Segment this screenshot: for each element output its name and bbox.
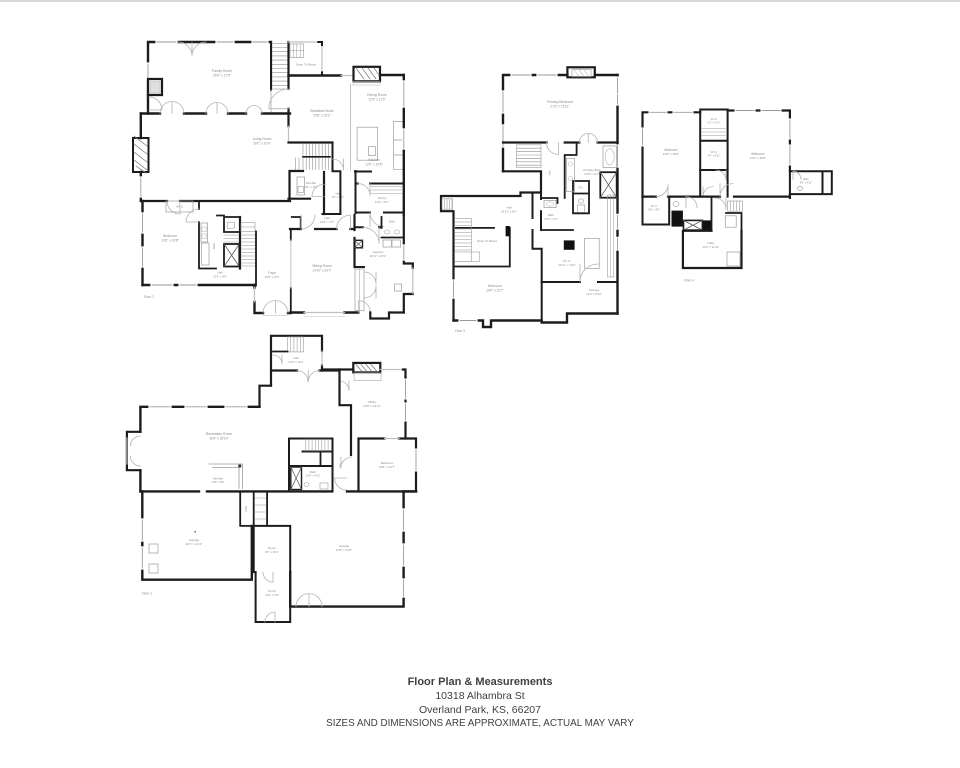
svg-text:10'8" x 4'10": 10'8" x 4'10" [306, 474, 321, 478]
svg-text:5'6" x 4'9": 5'6" x 4'9" [648, 208, 659, 212]
svg-text:12'2" x 8'10": 12'2" x 8'10" [586, 292, 602, 296]
svg-text:13'6" x 12'11": 13'6" x 12'11" [702, 245, 719, 249]
svg-text:12'9" x 11'9": 12'9" x 11'9" [368, 98, 385, 102]
svg-text:13'8" x 11'6": 13'8" x 11'6" [584, 172, 600, 176]
svg-text:Floor 4: Floor 4 [684, 279, 694, 283]
svg-text:W.I.C: W.I.C [711, 150, 718, 154]
svg-text:Floor 2: Floor 2 [144, 295, 154, 299]
svg-text:Recreation Room: Recreation Room [206, 432, 233, 436]
svg-text:W.I.C: W.I.C [711, 117, 718, 121]
svg-text:14'8" x 20'5": 14'8" x 20'5" [663, 152, 679, 156]
svg-text:26'6" x 17'0": 26'6" x 17'0" [213, 74, 230, 78]
svg-text:Toilet: Toilet [245, 506, 248, 512]
svg-text:Bedroom: Bedroom [163, 234, 177, 238]
svg-text:13'6" x 16'8": 13'6" x 16'8" [161, 239, 178, 243]
svg-text:13'8" x 13'11": 13'8" x 13'11" [363, 404, 381, 408]
svg-text:12'8" x 8'9": 12'8" x 8'9" [211, 480, 224, 484]
svg-text:21'6" x 15'11": 21'6" x 15'11" [550, 105, 569, 109]
svg-text:36'4" x 26'10": 36'4" x 26'10" [209, 437, 228, 441]
svg-text:27'8" x 21'8": 27'8" x 21'8" [336, 548, 352, 552]
svg-text:26'6" x 20'0": 26'6" x 20'0" [253, 142, 270, 146]
svg-text:11'11" x 20'1": 11'11" x 20'1" [369, 254, 386, 258]
svg-text:14'9" x 20'5": 14'9" x 20'5" [750, 156, 766, 160]
svg-text:Open To Below: Open To Below [296, 63, 317, 67]
svg-text:Floor 1: Floor 1 [142, 592, 152, 596]
svg-text:Dining Room: Dining Room [367, 93, 387, 97]
svg-text:Living Room: Living Room [253, 137, 272, 141]
svg-text:Bath: Bath [310, 470, 316, 474]
svg-text:W.C.: W.C. [578, 186, 584, 190]
svg-text:Bath: Bath [803, 177, 809, 181]
svg-text:11'6" x 8'7": 11'6" x 8'7" [375, 200, 389, 204]
svg-text:Bath: Bath [212, 243, 216, 249]
svg-text:12'6" x 11'2": 12'6" x 11'2" [288, 360, 303, 364]
svg-text:13'8" x 12'7": 13'8" x 12'7" [379, 465, 395, 469]
svg-text:Bath: Bath [389, 220, 395, 224]
svg-text:4'0" x 6'11": 4'0" x 6'11" [708, 154, 721, 158]
svg-text:Floor 3: Floor 3 [455, 329, 465, 333]
svg-text:Primary Bedroom: Primary Bedroom [547, 100, 574, 104]
svg-text:6'1" x 9'10": 6'1" x 9'10" [708, 121, 721, 125]
svg-text:10'0" x 6'5": 10'0" x 6'5" [265, 275, 280, 279]
svg-text:7'6" x 16'1": 7'6" x 16'1" [331, 195, 344, 199]
svg-text:15'8" x 25'2": 15'8" x 25'2" [313, 114, 330, 118]
svg-text:11'0" x 6'8": 11'0" x 6'8" [265, 593, 279, 597]
svg-text:9'1" x 16'1": 9'1" x 16'1" [265, 550, 279, 554]
svg-text:Hall: Hall [548, 170, 552, 175]
svg-text:20'11" x 19'0": 20'11" x 19'0" [558, 263, 575, 267]
svg-text:Family Room: Family Room [212, 69, 232, 73]
svg-text:10'4" x 4'0": 10'4" x 4'0" [213, 275, 227, 279]
svg-text:Wet Bar: Wet Bar [213, 477, 223, 481]
svg-text:W.I.C: W.I.C [651, 204, 658, 208]
svg-text:12'6" x 6'3": 12'6" x 6'3" [544, 217, 558, 221]
svg-text:Breakfast Nook: Breakfast Nook [310, 109, 333, 113]
svg-text:19'6" x 22'7": 19'6" x 22'7" [486, 289, 503, 293]
svg-text:24'11" x 8'0": 24'11" x 8'0" [501, 210, 517, 214]
svg-text:22'1" x 21'4": 22'1" x 21'4" [186, 542, 202, 546]
svg-text:Bedroom: Bedroom [488, 284, 502, 288]
svg-text:W.I.C.: W.I.C. [176, 205, 184, 209]
svg-text:14'10" x 20'1": 14'10" x 20'1" [312, 269, 331, 273]
svg-text:16'6" x 7'6": 16'6" x 7'6" [320, 220, 334, 224]
svg-text:12'9" x 19'6": 12'9" x 19'6" [365, 163, 382, 167]
svg-text:Open To Below: Open To Below [477, 239, 498, 243]
svg-text:8'0" x 4'11": 8'0" x 4'11" [800, 181, 813, 185]
svg-text:Sitting Room: Sitting Room [312, 264, 332, 268]
